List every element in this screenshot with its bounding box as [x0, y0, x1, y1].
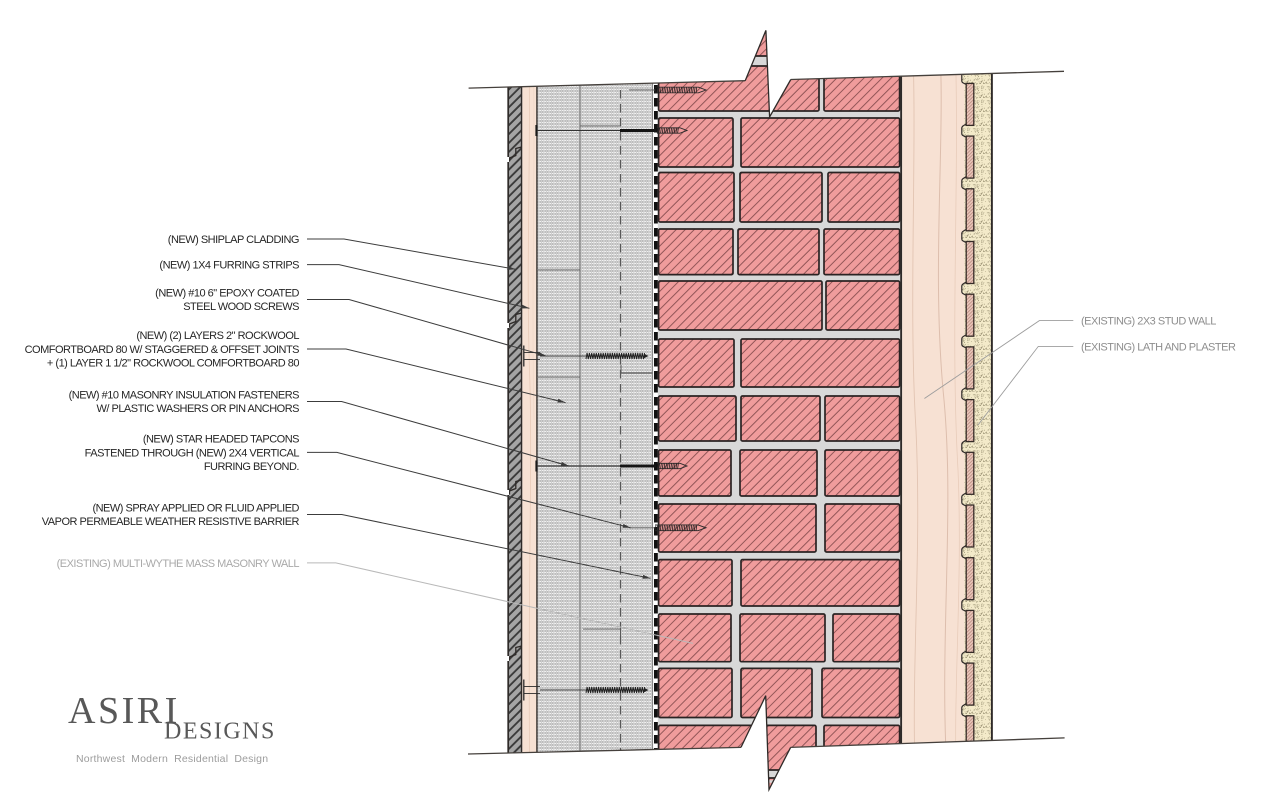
svg-text:Northwest Modern Residential D: Northwest Modern Residential Design [76, 753, 268, 765]
svg-text:(EXISTING) MULTI-WYTHE MASS MA: (EXISTING) MULTI-WYTHE MASS MASONRY WALL [57, 558, 300, 570]
svg-text:(NEW) SPRAY APPLIED OR FLUID A: (NEW) SPRAY APPLIED OR FLUID APPLIED [92, 503, 299, 515]
svg-text:(NEW) STAR HEADED TAPCONS: (NEW) STAR HEADED TAPCONS [143, 434, 299, 446]
svg-text:W/ PLASTIC WASHERS OR PIN ANCH: W/ PLASTIC WASHERS OR PIN ANCHORS [96, 403, 299, 415]
svg-text:ASIRI: ASIRI [68, 690, 180, 732]
svg-text:(EXISTING) 2X3 STUD WALL: (EXISTING) 2X3 STUD WALL [1081, 316, 1216, 328]
svg-text:(NEW) #10 MASONRY INSULATION F: (NEW) #10 MASONRY INSULATION FASTENERS [69, 390, 300, 402]
svg-text:FURRING BEYOND.: FURRING BEYOND. [204, 461, 300, 473]
svg-text:(EXISTING) LATH AND PLASTER: (EXISTING) LATH AND PLASTER [1081, 341, 1236, 353]
svg-text:(NEW) SHIPLAP CLADDING: (NEW) SHIPLAP CLADDING [168, 234, 299, 246]
svg-text:STEEL WOOD SCREWS: STEEL WOOD SCREWS [183, 301, 299, 313]
svg-text:COMFORTBOARD 80 W/ STAGGERED &: COMFORTBOARD 80 W/ STAGGERED & OFFSET JO… [25, 344, 300, 356]
svg-text:(NEW) #10 6" EPOXY COATED: (NEW) #10 6" EPOXY COATED [155, 288, 299, 300]
svg-text:FASTENED THROUGH (NEW) 2X4 VER: FASTENED THROUGH (NEW) 2X4 VERTICAL [85, 447, 300, 459]
svg-text:DESIGNS: DESIGNS [164, 719, 276, 745]
svg-text:+ (1) LAYER 1 1/2" ROCKWOOL CO: + (1) LAYER 1 1/2" ROCKWOOL COMFORTBOARD… [47, 358, 299, 370]
svg-text:(NEW) (2) LAYERS 2" ROCKWOOL: (NEW) (2) LAYERS 2" ROCKWOOL [136, 330, 299, 342]
svg-text:(NEW) 1X4 FURRING STRIPS: (NEW) 1X4 FURRING STRIPS [159, 260, 299, 272]
svg-text:VAPOR PERMEABLE WEATHER RESIST: VAPOR PERMEABLE WEATHER RESISTIVE BARRIE… [42, 516, 300, 528]
